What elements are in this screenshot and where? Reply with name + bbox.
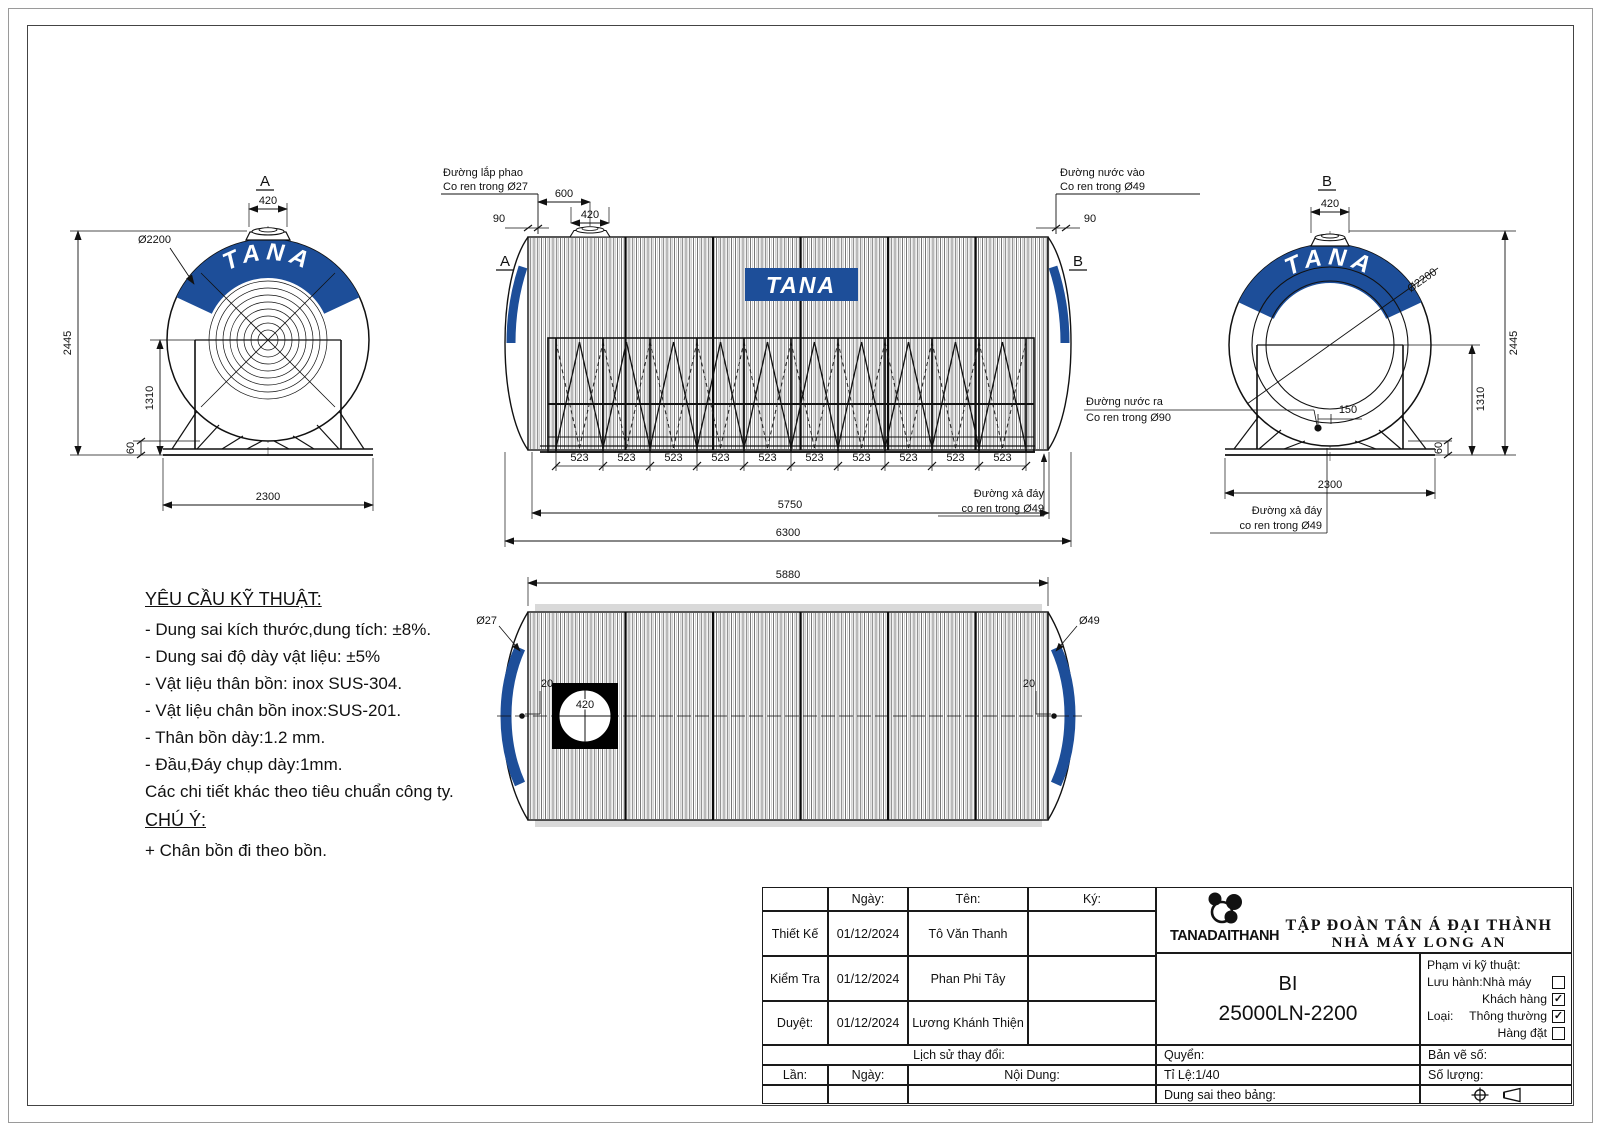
tb-role-approve: Duyệt:: [762, 1001, 828, 1045]
dim-523-segment: 523: [664, 452, 682, 464]
dim-2445-b: 2445: [1508, 331, 1520, 355]
outlet-port-b: [1314, 424, 1321, 431]
first-angle-projection-icon: [1500, 1087, 1522, 1103]
plan-view: 420 5880 Ø27 Ø49 20 20: [476, 569, 1100, 827]
drawing-sheet: TANA: [0, 0, 1600, 1130]
tb-date-approve: 01/12/2024: [828, 1001, 908, 1045]
manhole-a: [246, 228, 290, 240]
front-drain-label-1: Đường xả đáy: [974, 488, 1045, 500]
model-code: BI: [1279, 973, 1298, 996]
tb-header-name: Tên:: [908, 887, 1028, 911]
front-cap-band-right: [1053, 267, 1065, 343]
note-line: - Thân bồn dày:1.2 mm.: [145, 724, 505, 751]
tb-volume-label: Quyển:: [1156, 1045, 1420, 1065]
dim-523-segment: 523: [899, 452, 917, 464]
b-drain-label-1: Đường xả đáy: [1252, 505, 1323, 517]
note-line: Các chi tiết khác theo tiêu chuẩn công t…: [145, 778, 505, 805]
tb-rev-cell-empty: [908, 1085, 1156, 1104]
manhole-front: [570, 227, 610, 237]
dim-420-front: 420: [581, 209, 599, 221]
tb-scope-cell: Phạm vi kỹ thuật: Lưu hành:Nhà máy Khách…: [1420, 953, 1572, 1045]
company-name-line2: NHÀ MÁY LONG AN: [1275, 935, 1563, 952]
tb-role-check: Kiểm Tra: [762, 956, 828, 1001]
dim-dia-a: Ø2200: [138, 234, 171, 246]
dim-2300-b: 2300: [1318, 479, 1342, 491]
tb-header-date: Ngày:: [828, 887, 908, 911]
tb-rev-cell-empty: [762, 1085, 828, 1104]
dim-o49: Ø49: [1079, 615, 1100, 627]
outlet-label-1: Đường nước ra: [1086, 396, 1164, 408]
dim-1310-a: 1310: [144, 386, 156, 410]
scope-label: Hàng đặt: [1498, 1025, 1552, 1042]
note-line: - Đầu,Đáy chụp dày:1mm.: [145, 751, 505, 778]
plan-shadow-top: [535, 604, 1042, 611]
checkbox-thong-thuong: ✓: [1552, 1010, 1565, 1023]
datum-target-icon: [1470, 1087, 1490, 1103]
tb-sign-design: [1028, 911, 1156, 956]
section-label-b: B: [1073, 253, 1083, 270]
tb-name-approve: Lương Khánh Thiện: [908, 1001, 1028, 1045]
inlet-label-1: Đường nước vào: [1060, 167, 1145, 179]
view-label-b: B: [1322, 173, 1332, 190]
tb-empty-header: [762, 887, 828, 911]
panda-logo-icon: [1201, 890, 1247, 928]
front-cap-band-left: [511, 267, 523, 343]
scope-prefix: Lưu hành:Nhà máy: [1427, 974, 1531, 991]
model-number: 25000LN-2200: [1219, 1002, 1358, 1026]
tb-model-cell: BI 25000LN-2200: [1156, 953, 1420, 1045]
technical-notes: YÊU CẦU KỸ THUẬT: - Dung sai kích thước,…: [145, 586, 505, 864]
dim-2300-a: 2300: [256, 491, 280, 503]
company-logo: TANADAITHANH: [1170, 890, 1279, 944]
tb-name-design: Tô Văn Thanh: [908, 911, 1028, 956]
tb-role-design: Thiết Kế: [762, 911, 828, 956]
caution-line: + Chân bồn đi theo bồn.: [145, 837, 505, 864]
brand-text-front: TANA: [766, 272, 836, 298]
dim-5750: 5750: [778, 499, 802, 511]
dim-600: 600: [555, 188, 573, 200]
dim-523-segment: 523: [758, 452, 776, 464]
title-block: Ngày: Tên: Ký: Thiết Kế 01/12/2024 Tô Vă…: [762, 887, 1572, 1104]
tb-scale-label: Tỉ Lệ:1/40: [1156, 1065, 1420, 1085]
dim-6300: 6300: [776, 527, 800, 539]
note-line: - Dung sai kích thước,dung tích: ±8%.: [145, 616, 505, 643]
logo-text: TANADAITHANH: [1170, 928, 1279, 944]
dim-420-plan: 420: [576, 699, 594, 711]
dim-90-right: 90: [1084, 213, 1096, 225]
tb-date-design: 01/12/2024: [828, 911, 908, 956]
dim-523-segment: 523: [617, 452, 635, 464]
scope-label: Thông thường: [1469, 1008, 1552, 1025]
dim-2445-a: 2445: [62, 331, 74, 355]
caution-title: CHÚ Ý:: [145, 807, 505, 834]
checkbox-nha-may: [1552, 976, 1565, 989]
tb-rev-label: Lần:: [762, 1065, 828, 1085]
dim-60-a: 60: [125, 442, 137, 454]
dim-523-segment: 523: [711, 452, 729, 464]
dim-90-left: 90: [493, 213, 505, 225]
tb-quantity-label: Số lượng:: [1420, 1065, 1572, 1085]
tb-rev-cell-empty: [828, 1085, 908, 1104]
checkbox-hang-dat: [1552, 1027, 1565, 1040]
plan-manhole: 420: [552, 683, 618, 749]
b-drain-label-2: co ren trong Ø49: [1239, 520, 1322, 532]
notes-title: YÊU CẦU KỸ THUẬT:: [145, 586, 505, 613]
tb-sign-check: [1028, 956, 1156, 1001]
dim-150-b: 150: [1339, 404, 1357, 416]
tb-rev-date-label: Ngày:: [828, 1065, 908, 1085]
end-view-a: TANA: [62, 173, 373, 511]
company-name-line1: TẬP ĐOÀN TÂN Á ĐẠI THÀNH: [1275, 917, 1563, 935]
checkbox-khach-hang: ✓: [1552, 993, 1565, 1006]
tb-projection-cell: [1420, 1085, 1572, 1104]
tb-drawing-no-label: Bản vẽ số:: [1420, 1045, 1572, 1065]
tb-header-sign: Ký:: [1028, 887, 1156, 911]
front-drain-label-2: co ren trong Ø49: [961, 503, 1044, 515]
note-line: - Vật liệu thân bồn: inox SUS-304.: [145, 670, 505, 697]
dim-20-right: 20: [1023, 678, 1035, 690]
dim-523-segment: 523: [805, 452, 823, 464]
tb-name-check: Phan Phi Tây: [908, 956, 1028, 1001]
dim-420-a: 420: [259, 195, 277, 207]
note-line: - Dung sai độ dày vật liệu: ±5%: [145, 643, 505, 670]
dim-dia-b: Ø2200: [1405, 266, 1439, 295]
float-label-1: Đường lắp phao: [443, 166, 523, 179]
outlet-label-2: Co ren trong Ø90: [1086, 412, 1171, 424]
dim-60-b: 60: [1433, 442, 1445, 454]
tb-sign-approve: [1028, 1001, 1156, 1045]
front-bottom-dims: 523523523523523523523523523523 5750 6300…: [505, 452, 1071, 547]
section-label-a: A: [500, 253, 510, 270]
tb-tolerance-label: Dung sai theo bảng:: [1156, 1085, 1420, 1104]
end-view-b: TANA: [1084, 173, 1520, 533]
dim-523-segment: 523: [570, 452, 588, 464]
dim-523-segment: 523: [993, 452, 1011, 464]
dim-420-b: 420: [1321, 198, 1339, 210]
dim-1310-b: 1310: [1475, 387, 1487, 411]
view-label-a: A: [260, 173, 270, 190]
dim-523-segment: 523: [946, 452, 964, 464]
note-line: - Vật liệu chân bồn inox:SUS-201.: [145, 697, 505, 724]
manhole-b: [1311, 234, 1349, 246]
front-view: TANA Đường lắp phao Co ren trong Ø27 600: [441, 166, 1200, 547]
scope-title: Phạm vi kỹ thuật:: [1427, 957, 1565, 974]
scope-label: Khách hàng: [1482, 991, 1552, 1008]
scope-prefix-loai: Loại:: [1427, 1008, 1453, 1025]
tb-history-label: Lịch sử thay đổi:: [762, 1045, 1156, 1065]
tb-date-check: 01/12/2024: [828, 956, 908, 1001]
inlet-label-2: Co ren trong Ø49: [1060, 181, 1145, 193]
tb-rev-content-label: Nội Dung:: [908, 1065, 1156, 1085]
dim-5880: 5880: [776, 569, 800, 581]
dim-523-segment: 523: [852, 452, 870, 464]
plan-shadow-bottom: [535, 820, 1042, 827]
float-label-2: Co ren trong Ø27: [443, 181, 528, 193]
dim-20-left: 20: [541, 678, 553, 690]
